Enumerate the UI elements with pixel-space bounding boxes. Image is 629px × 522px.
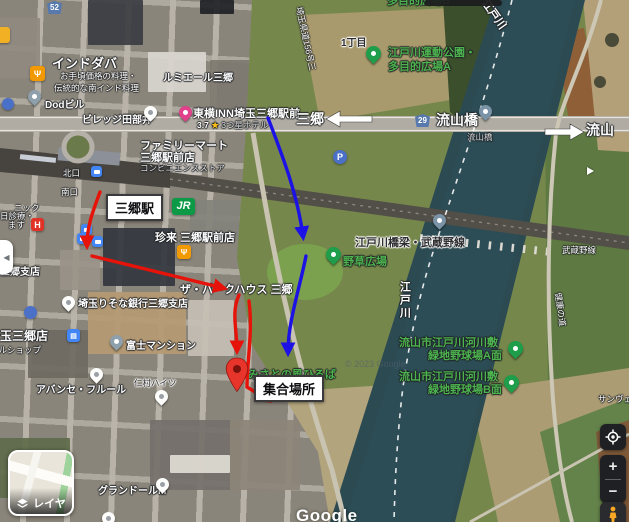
hotel-type: 3つ星ホテル — [221, 120, 268, 130]
chevron-left-icon: ◀ — [3, 253, 9, 262]
store-label-clipped: 埼玉三郷店 — [0, 330, 48, 343]
direction-label-misato: 三郷 — [296, 112, 324, 128]
layers-button[interactable]: レイヤ — [8, 450, 74, 516]
poi-label: 珍来 三郷駅前店 — [155, 232, 235, 244]
ballpark-label: 流山市江戸川河川敷 — [399, 371, 498, 383]
bank-label: 埼玉りそな銀行三郷支店 — [78, 299, 188, 310]
jr-logo: JR — [172, 198, 195, 215]
zoom-out-button[interactable]: − — [600, 482, 626, 501]
shopping-icon[interactable] — [24, 306, 37, 319]
ballpark-label: 緑地野球場A面 — [428, 350, 502, 362]
poi-label: ファミリーマート — [140, 140, 228, 152]
rail-line-label: 武蔵野線 — [562, 246, 596, 256]
parking-icon[interactable]: P — [333, 150, 347, 164]
park-label: 江戸川運動公園・ — [388, 47, 476, 59]
hotel-label: 東横INN埼玉三郷駅前 — [193, 108, 300, 120]
ballpark-label: 流山市江戸川河川敷 — [399, 337, 498, 349]
restaurant-icon[interactable]: Ψ — [30, 66, 45, 81]
river-label-mid: 江戸川 — [398, 281, 410, 320]
pref-road-label: 埼玉県道156号三 — [294, 6, 317, 72]
rating-value: 3.7 — [197, 120, 209, 130]
poi-yellow-icon[interactable] — [0, 27, 10, 43]
zoom-control: + − — [600, 455, 626, 503]
route-29-shield: 29 — [415, 114, 430, 127]
google-maps-satellite-view[interactable]: Ψ 52 29 P H Ψ ▤ インドダバ お手頃価格の料理・ 伝統的な南イン — [0, 0, 629, 522]
hospital-icon[interactable]: H — [31, 218, 44, 231]
store-sublabel-clipped: フルショップ — [0, 346, 41, 356]
bus-stop-icon[interactable] — [77, 233, 88, 244]
pegman-icon — [607, 506, 619, 522]
restaurant-icon[interactable]: Ψ — [177, 245, 191, 259]
park-label: 野草広場 — [343, 256, 387, 268]
map-labels-layer: インドダバ お手頃価格の料理・ 伝統的な南インド料理 ルミエール三郷 Dodビル… — [0, 0, 629, 522]
poi-label: アバンセ・フルール — [36, 385, 126, 396]
my-location-button[interactable] — [600, 424, 626, 450]
cut-off-label — [424, 0, 502, 6]
poi-label: 仁村ハイツ — [134, 379, 176, 389]
path-label: 健康の道 — [553, 292, 567, 327]
poi-label-clipped: サンヴェール — [598, 395, 629, 405]
layers-button-shade: レイヤ — [10, 488, 72, 514]
layers-button-label: レイヤ — [33, 498, 66, 510]
bridge-name-label: 流山橋 — [436, 113, 478, 129]
poi-blue-icon[interactable] — [2, 98, 14, 110]
poi-label: ルミエール三郷 — [163, 73, 233, 84]
google-logo[interactable]: Google — [296, 506, 358, 522]
poi-type-label: コンビニエンスストア — [140, 164, 225, 174]
zoom-in-button[interactable]: + — [600, 457, 626, 476]
poi-label: Dodビル — [45, 100, 84, 111]
hotel-rating: 3.7 ★ 3つ星ホテル — [197, 121, 268, 131]
direction-label-nagareyama: 流山 — [586, 123, 614, 139]
layers-diamond-icon — [16, 497, 29, 510]
poi-sublabel: お手頃価格の料理・ — [60, 72, 137, 82]
zoom-divider — [605, 479, 621, 480]
rail-bridge-label: 江戸川橋梁・武蔵野線 — [355, 237, 465, 249]
copyright-watermark: © 2023 Google — [345, 359, 406, 369]
poi-label: ザ・パークハウス 三郷 — [180, 284, 293, 296]
pegman-button[interactable] — [600, 502, 626, 522]
bus-stop-icon[interactable] — [91, 166, 102, 177]
bridge-name-sublabel: 流山橋 — [467, 133, 493, 143]
poi-label: インドダバ — [52, 57, 117, 72]
district-label: 1丁目 — [341, 38, 367, 49]
meeting-point-annotation-box: 集合場所 — [254, 375, 324, 402]
star-icon: ★ — [211, 120, 219, 130]
target-icon — [605, 429, 621, 445]
bus-stop-icon[interactable] — [92, 236, 103, 247]
exit-label: 南口 — [61, 188, 78, 198]
store-icon[interactable]: ▤ — [67, 329, 80, 342]
sidebar-collapse-button[interactable]: ◀ — [0, 240, 13, 274]
exit-label: 北口 — [63, 169, 80, 179]
route-52-shield: 52 — [47, 1, 62, 14]
poi-sublabel: 伝統的な南インド料理 — [54, 84, 139, 94]
poi-label: ビレッジ田部井 — [82, 115, 152, 126]
ballpark-label: 緑地野球場B面 — [428, 384, 502, 396]
misato-station-annotation-box: 三郷駅 — [106, 194, 163, 221]
clinic-label: ます — [8, 221, 25, 231]
poi-label: 富士マンション — [126, 341, 196, 352]
park-label: 多目的広場A — [388, 61, 451, 73]
